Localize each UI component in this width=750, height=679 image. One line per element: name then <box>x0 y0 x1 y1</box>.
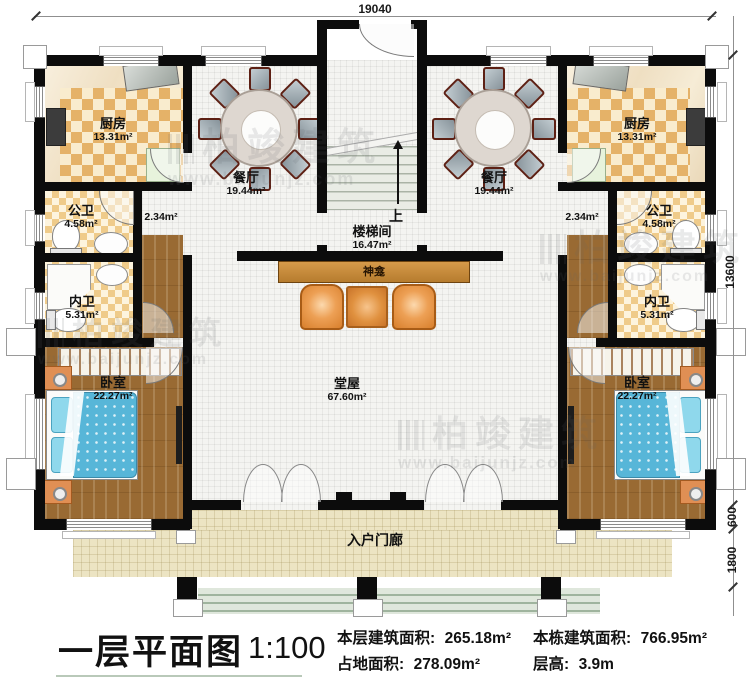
armchair <box>392 284 436 330</box>
porch-column <box>357 577 377 601</box>
room-label-dining-right: 餐厅 19.44m² <box>474 170 513 198</box>
shrine-table: 神龛 <box>278 261 470 283</box>
lamp <box>689 487 703 501</box>
window-sill <box>596 531 690 539</box>
dining-table <box>454 89 532 167</box>
window <box>103 55 159 66</box>
wall <box>34 253 142 262</box>
room-label-bedroom-right: 卧室 22.27m² <box>617 375 656 403</box>
lamp <box>53 373 67 387</box>
side-pad <box>716 458 746 490</box>
tea-table <box>346 286 388 328</box>
corridor-area-right: 2.34m² <box>565 211 598 223</box>
wall <box>427 55 716 66</box>
page-title: 一层平面图 <box>58 624 247 679</box>
bed-left <box>46 390 138 480</box>
wall-stub <box>417 245 427 251</box>
room-label-kitchen-left: 厨房 13.31m² <box>93 116 132 144</box>
column-base <box>353 599 383 617</box>
stove <box>686 108 706 146</box>
dining-table-top <box>475 110 515 150</box>
room-label-private-bath-right: 内卫 5.31m² <box>640 294 673 322</box>
floor-plan: 神龛 <box>0 0 750 679</box>
window-sill <box>25 82 35 122</box>
porch-column <box>541 577 561 601</box>
window-sill <box>201 46 266 56</box>
window-sill <box>717 82 727 122</box>
nightstand <box>680 480 708 504</box>
window <box>705 398 716 470</box>
title-underline-2 <box>56 675 302 677</box>
window <box>705 292 716 320</box>
watermark-logo-icon <box>168 134 194 164</box>
watermark: 柏竣建筑 www.baijunjz.com <box>38 316 228 369</box>
nightstand <box>680 366 708 390</box>
room-label-hall: 堂屋 67.60m² <box>327 376 366 404</box>
watermark-url: www.baijunjz.com <box>168 170 382 190</box>
lamp <box>689 373 703 387</box>
wall-stub <box>317 245 327 251</box>
wall <box>596 338 608 347</box>
tv <box>176 406 182 464</box>
dining-set-right <box>452 87 532 167</box>
room-label-public-bath-left: 公卫 4.58m² <box>64 203 97 231</box>
wall <box>34 55 317 66</box>
dining-chair <box>249 67 271 91</box>
watermark-logo-icon <box>540 234 566 264</box>
window <box>705 86 716 118</box>
window-sill <box>62 531 156 539</box>
watermark-url: www.baijunjz.com <box>398 454 604 473</box>
porch-pilaster <box>176 530 196 544</box>
shrine-shelf-wall <box>237 251 503 261</box>
window-sill <box>25 210 35 246</box>
porch-label: 入户门廊 <box>347 532 403 549</box>
dimension-top: 19040 <box>340 2 410 16</box>
column-base <box>537 599 567 617</box>
title-block: 一层平面图 1:100 本层建筑面积: 265.18m² 占地面积: 278.0… <box>0 618 750 679</box>
window <box>593 55 649 66</box>
watermark-url: www.baijunjz.com <box>38 351 228 369</box>
bed-right <box>614 390 706 480</box>
room-label-dining-left: 餐厅 19.44m² <box>226 170 265 198</box>
window-sill <box>589 46 653 56</box>
dimension-side-main: 13600 <box>723 242 737 302</box>
watermark-url: www.baijunjz.com <box>540 268 746 286</box>
column-base <box>173 599 203 617</box>
stat-footprint-area: 占地面积: 278.09m² <box>337 652 480 674</box>
window-sill <box>25 288 35 324</box>
corridor-area-left: 2.34m² <box>144 211 177 223</box>
threshold-tab <box>336 492 352 500</box>
watermark-logo-icon <box>38 318 64 348</box>
back-door-swing <box>359 24 414 57</box>
porch-pilaster <box>556 530 576 544</box>
dining-chair <box>432 118 456 140</box>
armchair <box>300 284 344 330</box>
window <box>66 519 152 530</box>
room-label-stairwell: 楼梯间 16.47m² <box>352 224 391 252</box>
watermark-logo-icon <box>398 420 424 450</box>
dimension-line-top <box>34 16 716 17</box>
window <box>205 55 262 66</box>
room-label-kitchen-right: 厨房 13.31m² <box>617 116 656 144</box>
room-label-bedroom-left: 卧室 22.27m² <box>93 375 132 403</box>
watermark: 柏竣建筑 www.baijunjz.com <box>540 228 746 285</box>
stairs-arrow-head <box>393 140 403 149</box>
porch-column <box>177 577 197 601</box>
wall <box>558 55 567 153</box>
dimension-side-porch: 600 <box>725 497 739 537</box>
stat-building-area: 本栋建筑面积: 766.95m² <box>533 626 707 648</box>
threshold-tab <box>390 492 406 500</box>
stat-storey-height: 层高: 3.9m <box>533 652 614 674</box>
room-label-public-bath-right: 公卫 4.58m² <box>642 203 675 231</box>
window <box>34 86 45 118</box>
dining-chair <box>483 67 505 91</box>
side-pad <box>6 328 36 356</box>
shrine-label: 神龛 <box>363 266 385 278</box>
watermark-brand: 柏竣建筑 <box>432 413 604 454</box>
wall <box>183 343 192 529</box>
window-sill <box>486 46 551 56</box>
window <box>34 214 45 242</box>
room-label-private-bath-left: 内卫 5.31m² <box>65 294 98 322</box>
corner-column <box>705 45 729 69</box>
lamp <box>53 487 67 501</box>
sink <box>96 264 128 286</box>
corner-column <box>23 45 47 69</box>
drawing-scale: 1:100 <box>248 630 326 666</box>
stairs-arrow-line <box>397 148 399 204</box>
wall <box>608 338 716 347</box>
dimension-side-steps: 1800 <box>725 540 739 580</box>
nightstand <box>44 366 72 390</box>
wall <box>417 60 427 213</box>
window <box>490 55 547 66</box>
watermark: 柏竣建筑 www.baijunjz.com <box>168 128 382 190</box>
stat-floor-area: 本层建筑面积: 265.18m² <box>337 626 511 648</box>
wall <box>318 500 424 510</box>
watermark-brand: 柏竣建筑 <box>202 127 382 169</box>
side-pad <box>6 458 36 490</box>
dining-chair <box>532 118 556 140</box>
duvet <box>73 392 137 478</box>
watermark: 柏竣建筑 www.baijunjz.com <box>398 414 604 472</box>
window <box>600 519 686 530</box>
side-pad <box>716 328 746 356</box>
wall <box>317 20 359 29</box>
window-sill <box>99 46 163 56</box>
watermark-brand: 柏竣建筑 <box>574 227 746 268</box>
wall <box>558 182 716 191</box>
stove <box>46 108 66 146</box>
nightstand <box>44 480 72 504</box>
stairs-up-label: 上 <box>389 208 403 225</box>
